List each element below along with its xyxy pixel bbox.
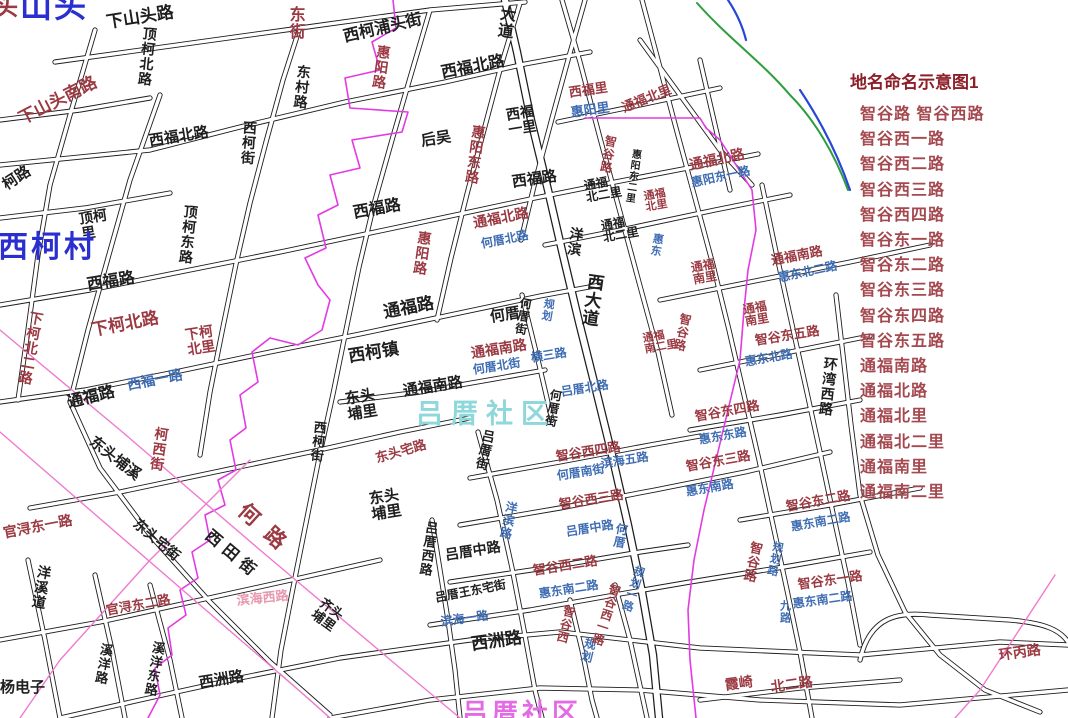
map-label: 惠阳里 [570, 101, 611, 120]
map-label: 西柯浦头街 [342, 12, 424, 46]
map-label: 通福 北二里 [583, 174, 623, 205]
map-label: 智谷西三路 [558, 488, 624, 512]
map-label: 西柯镇 [347, 340, 400, 365]
map-label: 通福路 [66, 384, 117, 412]
legend-item: 智谷东一路 [860, 226, 945, 250]
map-label: 下山头南路 [16, 73, 100, 127]
map-label: 规划路 [765, 540, 784, 578]
map-label: 智谷东二路 [785, 489, 851, 514]
map-label: 通福北路 [688, 146, 746, 172]
map-label: 通福北路 [472, 205, 530, 230]
legend-item: 通福北路 [860, 377, 928, 401]
map-label: 吕厝北路 [560, 378, 609, 398]
map-label: 西福路 [511, 169, 558, 191]
map-label: 通福路 [382, 294, 435, 321]
map-label: 顶柯北路 [137, 26, 158, 87]
map-label: 顶柯 里 [78, 208, 110, 241]
map-label: 西洲路 [198, 669, 245, 691]
map-label: 东街 [286, 6, 303, 40]
map-label: 西福北路 [440, 54, 506, 83]
map-label: 通福南路 [770, 244, 824, 267]
map-label: 东头 埔里 [368, 487, 403, 522]
map-label: 溪洋路 [93, 642, 114, 686]
map-label: 吕厝西路 [417, 520, 438, 577]
legend-item: 智谷路 智谷西路 [860, 100, 984, 124]
legend-item: 通福北里 [860, 402, 928, 426]
map-label: 西福一路 [126, 367, 184, 392]
map-label: 东头埔溪 [86, 434, 143, 483]
map-label: 横三路 [530, 346, 568, 364]
map-label: 通福北里 [620, 83, 673, 115]
map-label: 智谷路 [598, 134, 617, 175]
map-label: 下柯北二路 [17, 310, 44, 386]
map-label: 吕厝街 [473, 428, 495, 472]
map-label: 西田街 [201, 528, 262, 583]
map-label: 大道 [493, 4, 514, 40]
map-label: 北二路 [770, 674, 814, 694]
map-label: 通福 北二里 [600, 214, 640, 245]
map-label: 惠阳路 [412, 230, 433, 277]
map-label: 西柯街 [309, 420, 327, 463]
map-label: 何路 [233, 500, 300, 563]
legend-item: 通福北二里 [860, 428, 945, 452]
map-label: 何厝街 [543, 388, 562, 429]
map-label: 智谷东三路 [685, 449, 751, 474]
map-label: 柯路 [0, 164, 34, 193]
map-label: 惠东南二路 [538, 579, 599, 601]
map-label: 吕厝社区 [462, 700, 582, 718]
map-label: 东头宅街 [131, 516, 183, 563]
map-label: 智谷路 [741, 540, 763, 584]
map-label: 洋滨路 [498, 500, 518, 541]
map-label: 洋溪道 [30, 564, 52, 611]
legend-item: 智谷东五路 [860, 327, 945, 351]
map-label: 吕厝中路 [565, 518, 614, 538]
map-label: 东头宅路 [374, 438, 428, 465]
map-canvas: 头山头下山头路顶柯北路西柯浦头街东街惠阳路大道东村路西福北路下山头南路西福北路西… [0, 0, 1068, 718]
map-label: 柯西街 [149, 426, 170, 473]
map-label: 滨海五路 [600, 450, 649, 470]
map-label: 何厝北街 [472, 356, 521, 376]
map-label: 惠阳东路 [464, 124, 487, 185]
map-label: 通福 北里 [643, 188, 669, 214]
map-label: 下山头路 [105, 3, 175, 31]
map-label: 惠阳路 [371, 44, 392, 91]
map-label: 智谷西四路 [555, 440, 621, 464]
map-label: 官浔东二路 [105, 593, 171, 618]
map-label: 西柯街 [240, 120, 258, 166]
map-label: 惠东 [648, 232, 663, 258]
map-label: 东头 埔里 [344, 387, 379, 422]
legend-item: 智谷西一路 [860, 125, 945, 149]
map-label: 通福南路 [470, 337, 528, 360]
map-label: 下柯北路 [90, 309, 160, 339]
map-label: 通福南路 [402, 375, 464, 400]
legend-item: 智谷西三路 [860, 176, 945, 200]
map-label: 惠东北二路 [777, 260, 838, 285]
map-label: 通福 南二里 [642, 328, 678, 356]
map-label: 溪洋东路 [142, 640, 165, 697]
map-label: 后吴 [420, 129, 452, 149]
map-label: 西柯村 [0, 232, 97, 263]
map-label: 惠东东路 [698, 426, 747, 447]
map-label: 滨海一路 [440, 609, 489, 628]
map-label: 滨海西路 [236, 589, 289, 608]
map-label: 西福北路 [148, 125, 210, 150]
legend-item: 智谷西四路 [860, 201, 945, 225]
map-label: 杨电子 [0, 680, 45, 696]
map-label: 何厝南街 [556, 462, 605, 482]
map-label: 西大道 [578, 272, 603, 328]
map-label: 山头 [20, 0, 88, 23]
map-label: 智谷路 [672, 312, 692, 353]
map-label: 智谷东一路 [797, 569, 863, 591]
map-label: 何厝街 [513, 296, 532, 337]
map-label: 西洲路 [470, 629, 523, 654]
map-label: 智谷西二路 [532, 554, 598, 578]
legend-item: 通福南里 [860, 453, 928, 477]
map-label: 规划 [579, 636, 597, 664]
map-label: 西福路 [86, 270, 136, 294]
map-label: 洋滨 [566, 226, 585, 258]
map-label: 霞崎 [724, 674, 754, 692]
map-label: 九路 [778, 600, 789, 624]
map-label: 吕厝王东宅街 [434, 578, 507, 604]
map-label: 头 [0, 0, 18, 21]
legend-item: 智谷东四路 [860, 302, 945, 326]
legend-item: 智谷东三路 [860, 276, 945, 300]
legend-title: 地名命名示意图1 [850, 68, 978, 93]
map-label: 智谷西一路 [590, 582, 622, 648]
map-label: 通福 南里 [690, 258, 718, 287]
map-label: 环丙路 [998, 642, 1042, 662]
legend-item: 通福南路 [860, 352, 928, 376]
map-label: 下柯 北里 [184, 324, 216, 357]
map-label: 通福 南里 [742, 300, 770, 329]
map-label: 惠阳东二里 [622, 148, 640, 204]
map-label: 吕厝社区 [416, 400, 556, 428]
map-label: 顶柯东路 [178, 204, 199, 265]
map-label: 吕厝中路 [444, 539, 502, 562]
map-label: 智谷西 [555, 604, 577, 645]
map-label: 齐头 埔里 [309, 596, 346, 633]
map-label: 官浔东一路 [2, 513, 73, 541]
map-label: 西福里 [568, 81, 609, 100]
map-label: 环湾西路 [818, 356, 839, 417]
map-label: 规划 [539, 297, 554, 323]
map-label: 惠东南二路 [792, 590, 853, 611]
map-label: 惠东南二路 [790, 511, 851, 534]
legend-item: 通福南二里 [860, 478, 945, 502]
legend-item: 智谷东二路 [860, 251, 945, 275]
map-label: 规划一路 [619, 564, 645, 613]
map-label: 惠东南路 [685, 478, 734, 499]
map-label: 西福 一里 [505, 104, 537, 137]
map-label: 惠阳东一路 [690, 165, 751, 190]
map-label: 智谷东四路 [694, 399, 760, 424]
map-label: 何厝北路 [480, 229, 530, 250]
map-label: 智谷东五路 [754, 324, 820, 348]
map-label: 西福路 [352, 198, 402, 223]
map-label: 何厝 [489, 305, 521, 325]
map-label: 惠东北路 [744, 348, 793, 369]
map-label: 何厝 [611, 522, 628, 550]
legend-item: 智谷西二路 [860, 150, 945, 174]
map-label: 东村路 [292, 64, 311, 110]
